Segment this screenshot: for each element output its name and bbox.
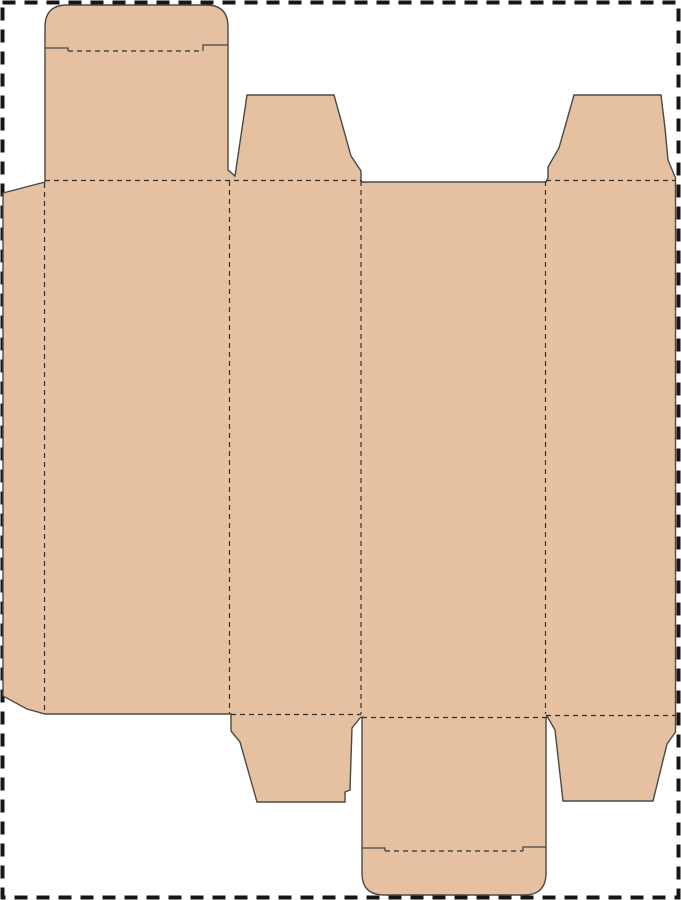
- box-template-dieline: [0, 0, 681, 900]
- dieline-shapes: [3, 5, 676, 895]
- dieline-outline: [3, 5, 676, 895]
- template-page: [0, 0, 681, 900]
